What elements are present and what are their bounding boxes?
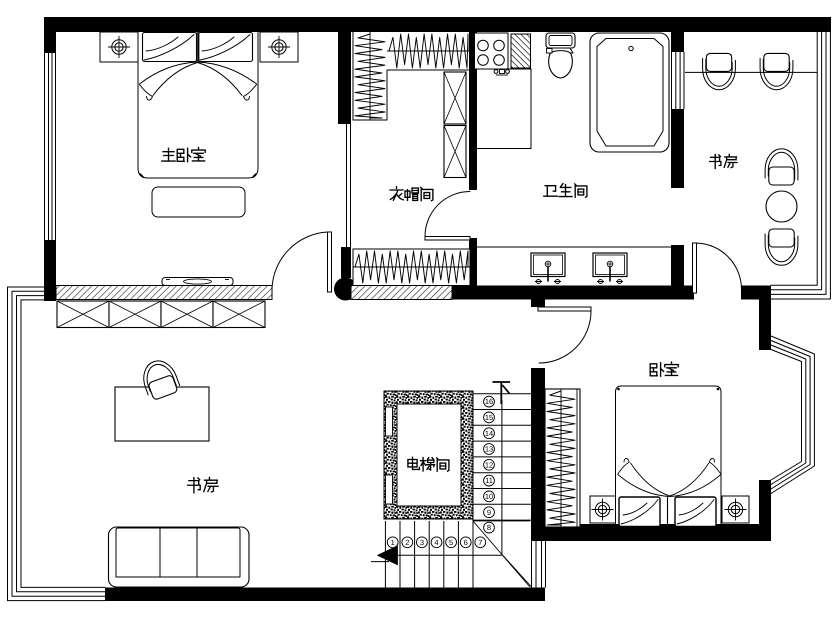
svg-text:1: 1 (391, 538, 395, 547)
svg-text:3: 3 (420, 538, 424, 547)
svg-text:2: 2 (405, 538, 409, 547)
svg-text:8: 8 (487, 523, 491, 532)
svg-text:15: 15 (485, 413, 493, 422)
svg-text:7: 7 (478, 538, 482, 547)
svg-text:11: 11 (485, 476, 493, 485)
svg-text:10: 10 (485, 492, 493, 501)
svg-text:13: 13 (485, 445, 493, 454)
svg-text:14: 14 (485, 429, 493, 438)
svg-text:12: 12 (485, 460, 493, 469)
svg-text:5: 5 (449, 538, 453, 547)
svg-text:16: 16 (485, 397, 493, 406)
svg-text:4: 4 (434, 538, 438, 547)
svg-text:6: 6 (464, 538, 468, 547)
svg-text:9: 9 (487, 508, 491, 517)
